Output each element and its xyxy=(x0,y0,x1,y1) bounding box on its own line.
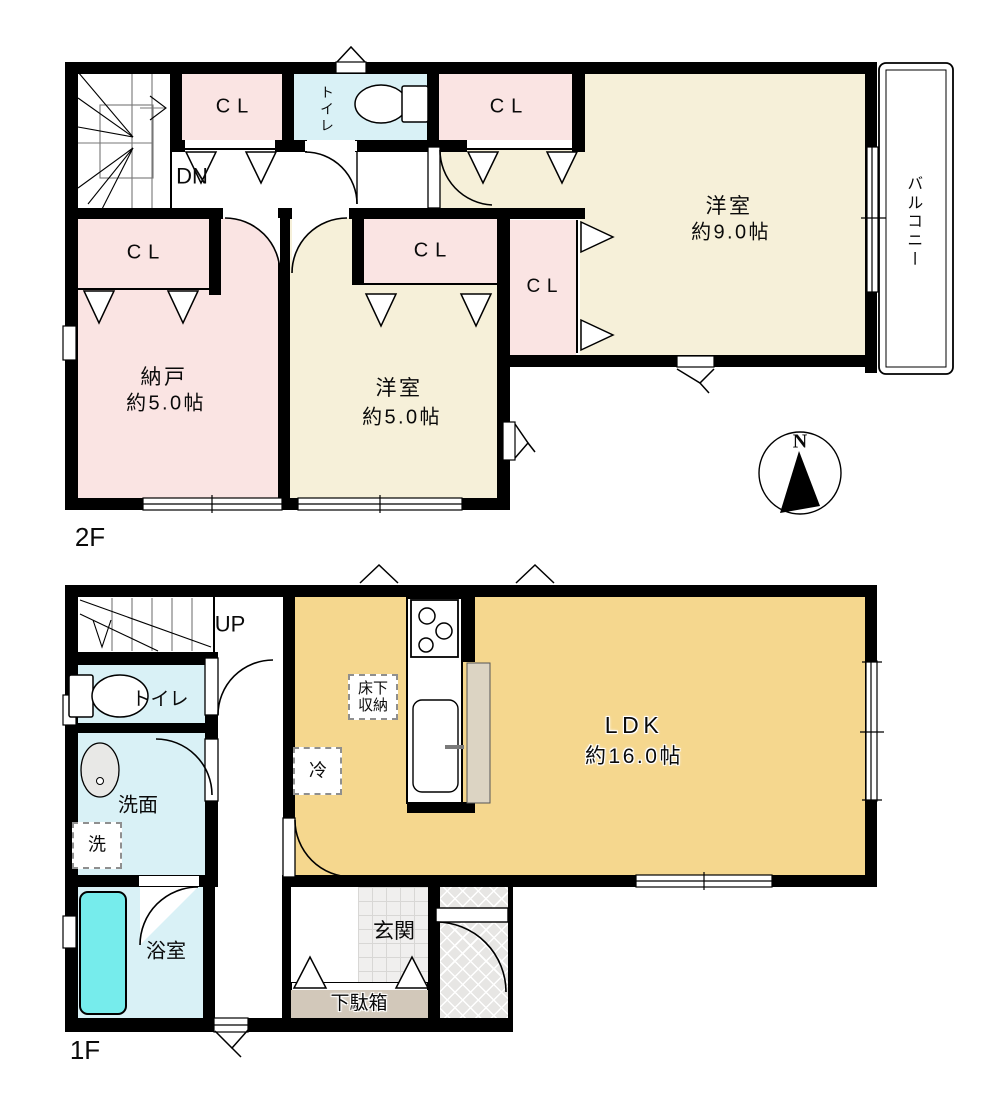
label-1f-ldk-name: LDK xyxy=(605,712,664,738)
label-2f-western5-area: 約5.0帖 xyxy=(362,407,442,430)
toilet-2f-icon xyxy=(355,85,428,123)
label-1f-toilet: トイレ xyxy=(131,689,188,711)
label-1f-bathroom: 浴室 xyxy=(146,941,186,964)
label-2f-western9-name: 洋室 xyxy=(705,195,752,219)
label-1f-stair-up: UP xyxy=(215,611,246,636)
kitchen-sink-icon xyxy=(413,700,464,792)
window-toilet2f-top xyxy=(336,62,366,73)
window-hall-bottom xyxy=(214,1018,248,1032)
staircase-2f xyxy=(78,72,166,213)
label-compass-north: N xyxy=(793,431,807,454)
label-2f-cl5: CL xyxy=(520,276,564,298)
label-floor-2f: 2F xyxy=(75,523,105,553)
label-2f-cl3: CL xyxy=(120,242,167,265)
window-bath-left xyxy=(63,916,76,948)
label-2f-cl1: CL xyxy=(209,96,256,119)
label-2f-storage-area: 約5.0帖 xyxy=(126,393,206,416)
label-1f-underfloor-storage: 床下 収納 xyxy=(358,680,388,715)
label-1f-washer: 洗 xyxy=(88,835,106,856)
label-2f-western5-name: 洋室 xyxy=(375,377,422,401)
kitchen-unit xyxy=(407,598,490,803)
window-ldk-right xyxy=(860,661,884,801)
door-1f-toilet xyxy=(205,658,273,715)
label-floor-1f: 1F xyxy=(70,1036,100,1066)
door-1f-bath xyxy=(139,876,199,945)
label-2f-stair-dn: DN xyxy=(176,163,208,188)
label-2f-cl2: CL xyxy=(483,96,530,119)
door-1f-ldk xyxy=(283,818,352,877)
window-west5-bottom xyxy=(298,495,462,513)
window-west9-bottom xyxy=(677,356,714,367)
stove-icon xyxy=(411,600,458,657)
door-1f-front xyxy=(436,908,508,992)
vent-marks xyxy=(215,47,714,1057)
bathtub-icon xyxy=(80,892,126,1014)
label-1f-entrance: 玄関 xyxy=(373,920,415,944)
staircase-1f xyxy=(80,598,211,651)
window-nando-bottom xyxy=(143,495,282,513)
door-1f-washroom xyxy=(156,739,218,801)
windows xyxy=(63,62,886,1032)
floorplan-canvas: CL CL CL CL CL トイレ 洋室 約9.0帖 納戸 約5.0帖 洋室 … xyxy=(0,0,994,1115)
door-2f-toilet xyxy=(305,141,357,204)
label-2f-western9-area: 約9.0帖 xyxy=(691,222,771,245)
washbasin-icon xyxy=(81,743,119,797)
window-nando-left xyxy=(63,326,76,360)
label-1f-ldk-area: 約16.0帖 xyxy=(585,745,683,769)
label-1f-refrigerator: 冷 xyxy=(309,761,327,782)
label-2f-cl4: CL xyxy=(407,240,454,263)
door-2f-nando xyxy=(225,218,280,273)
window-west5-right xyxy=(503,422,515,460)
doors xyxy=(139,141,508,992)
window-ldk-bottom xyxy=(636,872,772,890)
label-balcony: バルコニー xyxy=(903,175,921,269)
door-2f-west5 xyxy=(292,218,347,273)
label-2f-toilet: トイレ xyxy=(319,85,335,135)
label-1f-shoe-cabinet: 下駄箱 xyxy=(330,993,387,1015)
label-2f-storage-name: 納戸 xyxy=(140,366,187,390)
label-1f-washroom: 洗面 xyxy=(118,795,158,818)
